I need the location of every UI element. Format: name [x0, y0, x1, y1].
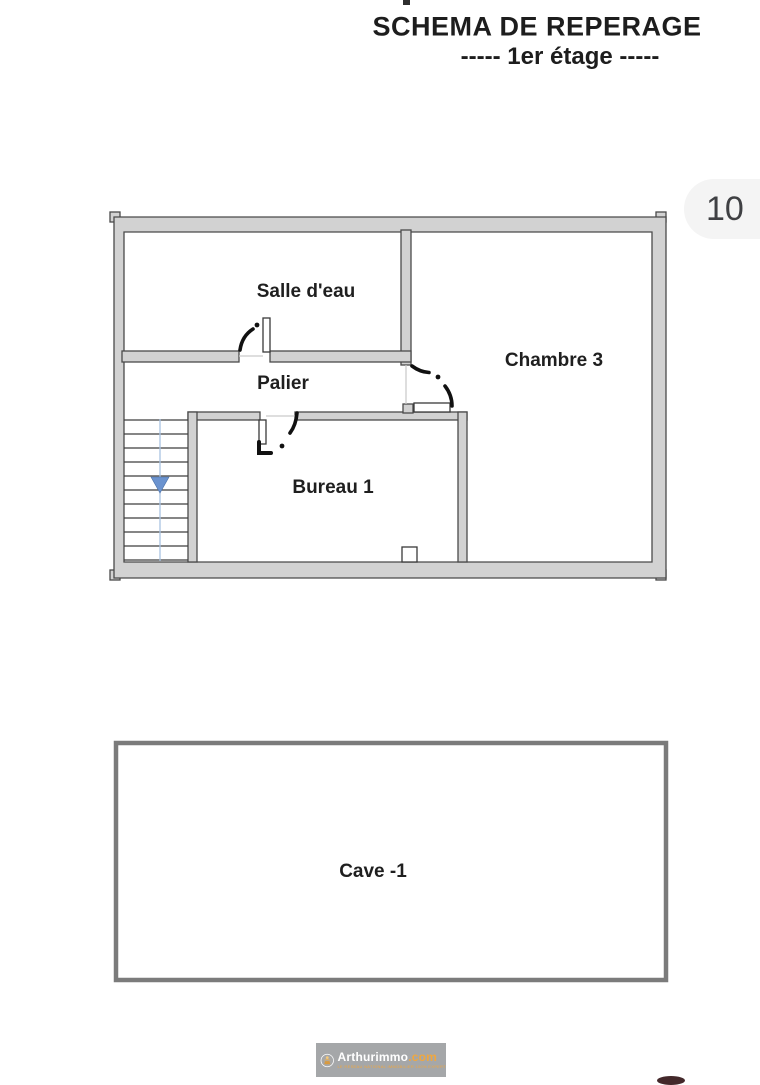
brand-tagline: LE RESEAU NATIONAL IMMOBILIER 100% EXPER…	[338, 1065, 446, 1069]
room-label-palier: Palier	[257, 373, 309, 395]
room-label-chambre-3: Chambre 3	[505, 350, 603, 372]
room-label-cave: Cave -1	[339, 861, 407, 883]
interior-walls	[122, 230, 467, 562]
arthurimmo-logo: Arthurimmo.com LE RESEAU NATIONAL IMMOBI…	[316, 1043, 446, 1077]
bottom-edge-artifact	[657, 1076, 685, 1085]
brand-name: Arthurimmo	[338, 1050, 409, 1064]
room-label-salle-deau: Salle d'eau	[257, 281, 356, 303]
room-label-bureau-1: Bureau 1	[292, 477, 373, 499]
arthurimmo-person-icon	[320, 1047, 335, 1074]
staircase	[124, 419, 188, 561]
floorplan-drawing	[0, 0, 760, 1080]
brand-suffix: .com	[408, 1050, 437, 1064]
